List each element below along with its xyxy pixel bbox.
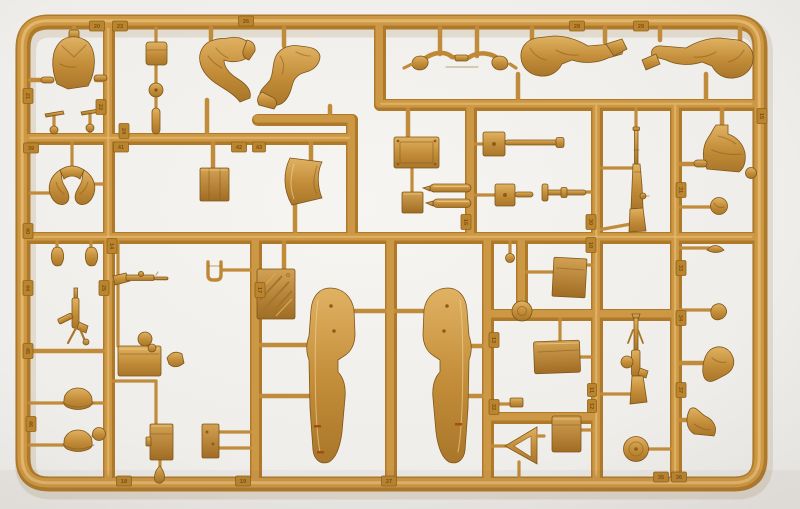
sprue-photo: 20 23 26 28 29 15 21 22 24 39 41 42 43 4… [0,0,800,509]
sprue-photo-canvas: 20 23 26 28 29 15 21 22 24 39 41 42 43 4… [0,0,800,509]
bottom-shade [0,470,800,509]
